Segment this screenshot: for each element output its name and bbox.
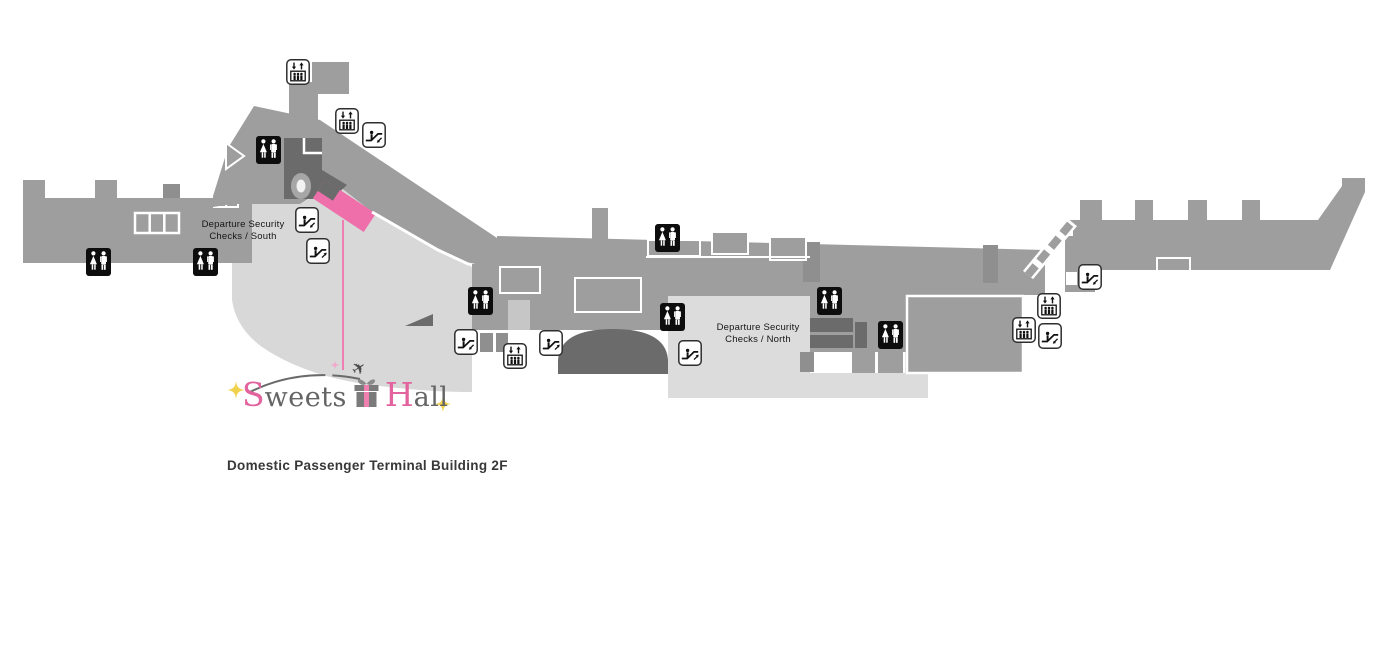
security-south-line2: Checks / South	[158, 231, 328, 243]
logo-wordmark: Sweets Hall	[242, 372, 449, 411]
restroom-icon	[655, 224, 680, 252]
escalator-down-icon	[1039, 324, 1061, 348]
sparkle-icon	[331, 361, 340, 370]
logo-letter-h: H	[385, 378, 414, 411]
security-south-line1: Departure Security	[158, 219, 328, 231]
elevator-icon	[1013, 318, 1035, 342]
security-north-line1: Departure Security	[673, 322, 843, 334]
sweets-hall-logo: ✈ Sweets Hall	[220, 360, 480, 426]
restroom-icon	[193, 248, 218, 276]
logo-word-all: all	[414, 384, 449, 411]
elevator-icon	[1038, 294, 1060, 318]
restroom-icon	[878, 321, 903, 349]
escalator-down-icon	[1079, 265, 1101, 289]
logo-letter-s: S	[242, 378, 265, 411]
security-north-label: Departure Security Checks / North	[673, 322, 843, 345]
escalator-up-icon	[540, 331, 562, 355]
elevator-icon	[504, 344, 526, 368]
elevator-icon	[287, 60, 309, 84]
escalator-up-icon	[307, 239, 329, 263]
restroom-icon	[256, 136, 281, 164]
escalator-down-icon	[455, 330, 477, 354]
building-caption: Domestic Passenger Terminal Building 2F	[227, 458, 508, 473]
elevator-icon	[336, 109, 358, 133]
restroom-icon	[817, 287, 842, 315]
security-north-line2: Checks / North	[673, 334, 843, 346]
escalator-down-icon	[363, 123, 385, 147]
logo-word-weets: weets	[265, 384, 347, 411]
right-wing	[1063, 178, 1365, 292]
restroom-icon	[86, 248, 111, 276]
arch-room	[558, 329, 668, 374]
large-room	[907, 296, 1023, 373]
restroom-icon	[468, 287, 493, 315]
terminal-map-page: Departure Security Checks / South Depart…	[0, 0, 1398, 660]
gift-box-icon	[353, 375, 380, 409]
security-south-label: Departure Security Checks / South	[158, 219, 328, 242]
